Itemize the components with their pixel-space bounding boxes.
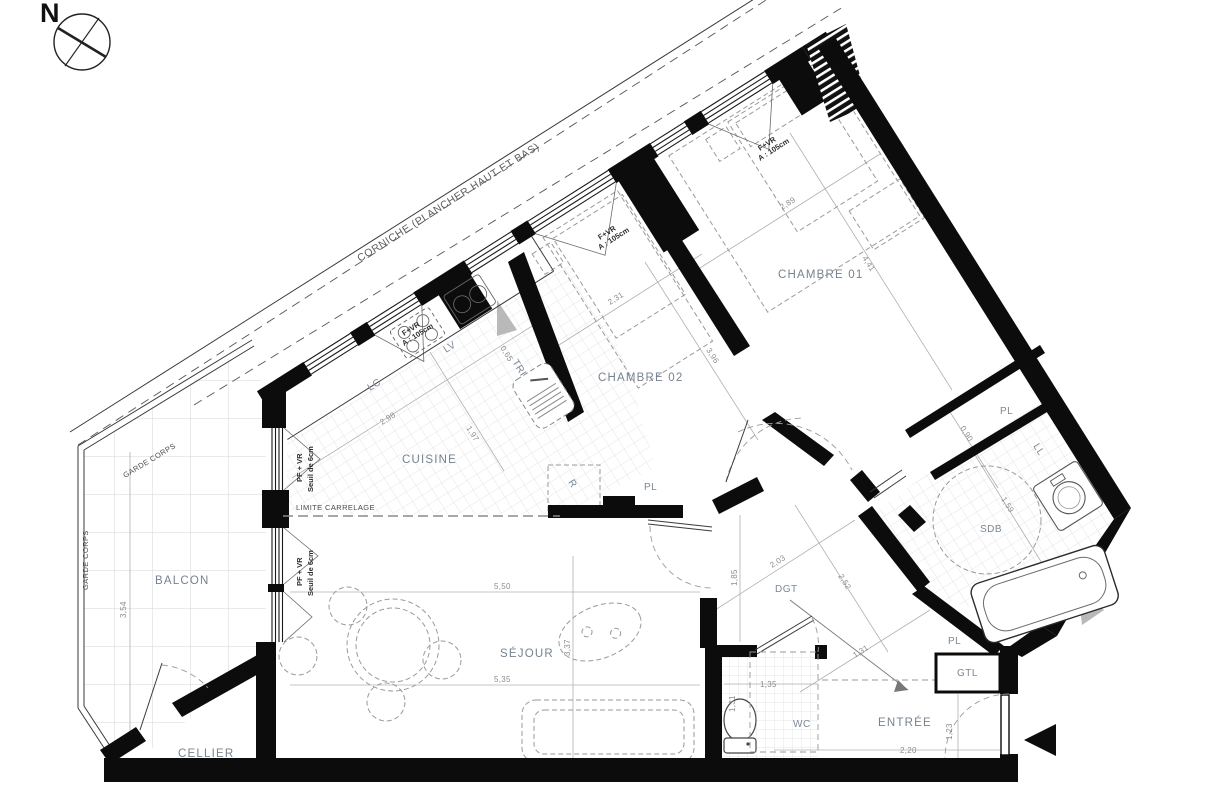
dim-sejour-height: 3,37 xyxy=(563,639,572,656)
window-label-pfvr-2: PF + VR Seuil de 6cm xyxy=(295,550,315,596)
room-label-gtl: GTL xyxy=(957,668,978,679)
wall-wc-west xyxy=(705,645,722,766)
entry-wall-above-door xyxy=(1000,646,1018,694)
window-label-fvr-chambre01: F+VR A : 105cm xyxy=(756,134,791,162)
room-label-pl-entree: PL xyxy=(948,636,961,647)
svg-text:Seuil de 6cm: Seuil de 6cm xyxy=(306,550,315,596)
wall-wc-east-block xyxy=(815,645,827,659)
wall-sejour-pl-block xyxy=(603,496,635,512)
wall-chambre02-chambre01 xyxy=(662,234,750,356)
entry-direction-arrowhead xyxy=(894,680,908,692)
room-label-cuisine: CUISINE xyxy=(402,454,457,466)
dim-entree-diag: 1,31 xyxy=(851,643,870,660)
dim-sejour-width-top: 5,50 xyxy=(494,582,511,591)
room-label-wc: WC xyxy=(793,719,811,730)
dim-wc-width: 1,35 xyxy=(760,680,777,689)
room-label-pl-sdb: PL xyxy=(1000,406,1013,417)
compass: N xyxy=(40,0,110,70)
floor-plan-drawing: N CORNICHE (PLANCHER HAUT ET BAS) GARDE … xyxy=(0,0,1208,799)
chambre02-nightstand xyxy=(532,242,563,274)
sofa xyxy=(522,700,694,762)
limite-carrelage-label: LIMITE CARRELAGE xyxy=(296,503,375,512)
west-wall-bottom xyxy=(256,642,276,772)
west-windows xyxy=(272,428,283,642)
dim-chambre02-depth: 3,96 xyxy=(704,346,721,365)
west-wall-mid-pier xyxy=(262,490,289,528)
room-label-sejour: SÉJOUR xyxy=(500,647,554,660)
south-exterior-wall xyxy=(104,758,1018,782)
svg-text:Seuil de 6cm: Seuil de 6cm xyxy=(306,446,315,492)
coffee-table xyxy=(550,592,649,672)
room-label-balcon: BALCON xyxy=(155,575,210,587)
room-label-entree: ENTRÉE xyxy=(878,716,932,729)
dim-sejour-width-bottom: 5,35 xyxy=(494,675,511,684)
dim-entree-door: 1,23 xyxy=(945,723,954,740)
floor-plan-page: N CORNICHE (PLANCHER HAUT ET BAS) GARDE … xyxy=(0,0,1208,799)
west-wall-top-pier xyxy=(262,390,286,428)
window-label-fvr-chambre02: F+VR A : 105cm xyxy=(596,223,631,251)
dim-sdb-door: 0,90 xyxy=(958,424,975,443)
compass-north-label: N xyxy=(40,0,60,28)
dining-table xyxy=(279,587,461,721)
svg-text:PF + VR: PF + VR xyxy=(295,557,304,586)
dim-dgt-height: 1,85 xyxy=(730,569,739,586)
room-label-chambre02: CHAMBRE 02 xyxy=(598,372,684,384)
room-label-sdb: SDB xyxy=(980,524,1002,535)
garde-corps-label-left: GARDE CORPS xyxy=(81,530,90,590)
wall-sejour-wc xyxy=(700,598,717,648)
west-wall-mullion xyxy=(268,584,284,592)
room-label-pl-chambre02: PL xyxy=(644,482,657,493)
entry-arrow-icon xyxy=(1024,724,1056,756)
window-label-fvr-cuisine: F+VR A : 105cm xyxy=(400,319,435,347)
dim-entree-width: 2,20 xyxy=(900,746,917,755)
wall-wc-north xyxy=(705,645,757,657)
dim-dgt-diag: 2,52 xyxy=(836,572,853,591)
dim-balcon-depth: 3,54 xyxy=(119,601,128,618)
chambre01-nightstand-left xyxy=(706,127,740,162)
dim-wc-depth: 1,31 xyxy=(728,695,737,712)
dim-chambre01-width: 2,89 xyxy=(778,195,797,212)
room-label-chambre01: CHAMBRE 01 xyxy=(778,269,864,281)
room-label-cellier: CELLIER xyxy=(178,748,234,760)
wall-sejour-dgt-corner xyxy=(712,477,764,514)
wall-chambre01-door-jamb xyxy=(762,412,834,466)
dim-dgt-width: 2,03 xyxy=(768,553,787,570)
room-label-dgt: DGT xyxy=(775,584,798,595)
svg-text:PF + VR: PF + VR xyxy=(295,453,304,482)
entry-door-leaf xyxy=(1001,695,1009,755)
